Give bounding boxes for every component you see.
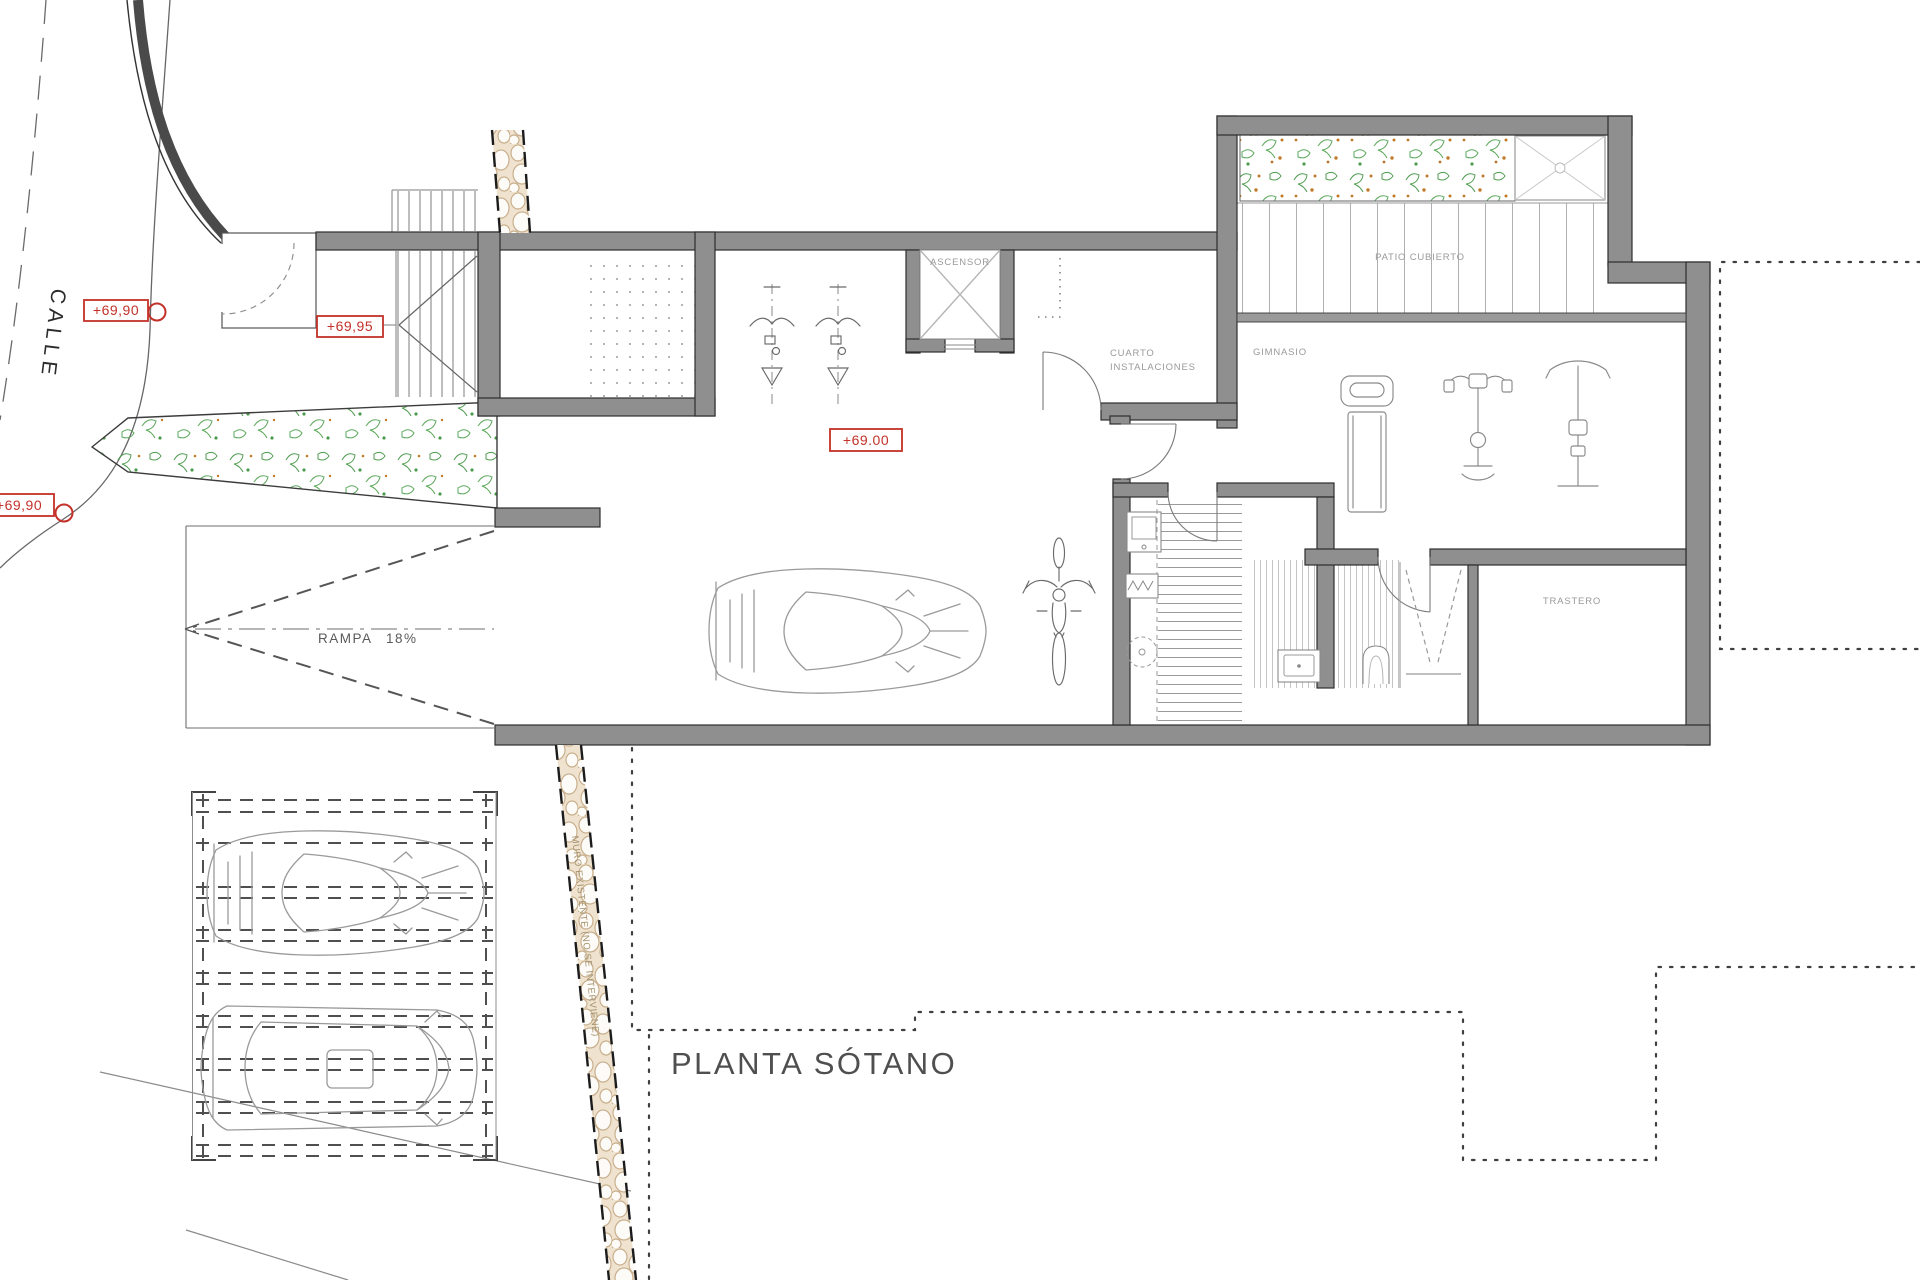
floor-plan-page: CALLE RAMPA 18% <box>0 0 1920 1280</box>
drying-slats-floor <box>1158 502 1242 724</box>
property-boundary-dotted <box>632 262 1920 1280</box>
elevation-value: +69,90 <box>93 302 139 318</box>
garage-motorcycle <box>1023 538 1095 685</box>
street-retaining-wall <box>138 0 226 237</box>
street-label: CALLE <box>36 287 70 381</box>
ramp <box>185 526 494 728</box>
motorcycle-bay-2 <box>816 284 860 404</box>
elevation-value: +69,90 <box>0 497 42 513</box>
garage-beam-dotted <box>1038 258 1062 317</box>
elevator-label: ASCENSOR <box>930 257 990 268</box>
garage-car <box>709 569 986 693</box>
parked-sports-car <box>207 831 484 955</box>
laundry-fixtures <box>1126 500 1161 724</box>
utility-room-label-line1: CUARTO <box>1110 348 1155 359</box>
storage-label: TRASTERO <box>1543 596 1601 607</box>
toilet <box>1363 646 1389 684</box>
elevation-value: +69.00 <box>843 432 889 448</box>
covered-patio-label: PATIO CUBIERTO <box>1375 252 1465 263</box>
cellar-dotted-floor <box>585 254 696 397</box>
patio-skylight <box>1515 136 1605 200</box>
staircase <box>316 190 478 397</box>
room-floors <box>585 203 1608 724</box>
elevation-marker-entry: +69,95 <box>317 316 383 337</box>
patio-planter <box>1240 135 1515 201</box>
ramp-label: RAMPA 18% <box>318 631 418 646</box>
street-curves <box>0 0 226 568</box>
lat-pulldown-machine <box>1546 361 1610 486</box>
elevation-marker-street-lower: +69,90 <box>0 494 73 522</box>
terrain-lines <box>100 1072 631 1280</box>
motorcycle-bay-1 <box>750 284 794 404</box>
plan-title: PLANTA SÓTANO <box>671 1046 957 1081</box>
parked-suv <box>201 1006 477 1130</box>
gym-label: GIMNASIO <box>1253 347 1307 358</box>
gym-low-wall <box>1237 313 1686 322</box>
elevation-marker-street-upper: +69,90 <box>84 300 166 321</box>
floor-plan-drawing: CALLE RAMPA 18% <box>0 0 1920 1280</box>
entry-hall <box>222 233 316 328</box>
elevation-value: +69,95 <box>327 318 373 334</box>
street-planter <box>92 402 497 508</box>
multi-gym-machine <box>1444 374 1512 480</box>
treadmill <box>1341 376 1393 512</box>
utility-room-label-line2: INSTALACIONES <box>1110 362 1196 373</box>
pergola-parking <box>192 792 497 1160</box>
elevation-marker-garage: +69.00 <box>830 429 902 451</box>
